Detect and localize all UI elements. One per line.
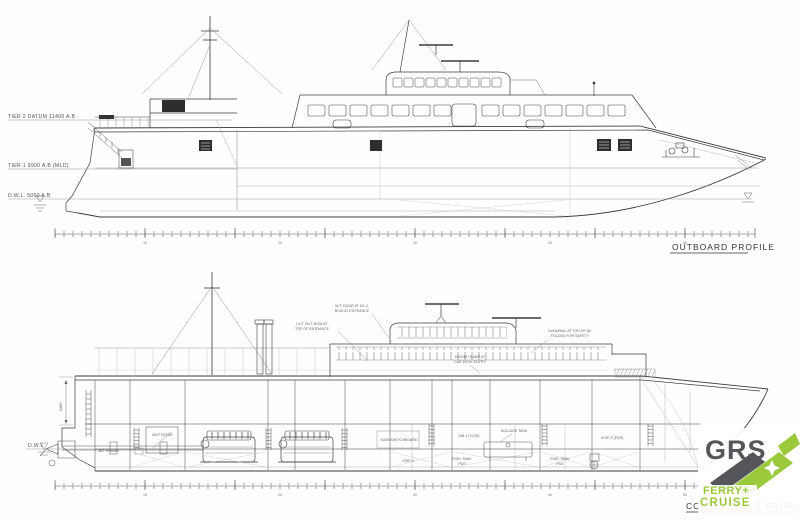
callout-4: HINGED RAMP AT xyxy=(455,355,486,359)
unit-room-label: UNIT ROOM xyxy=(152,433,173,437)
logo-cruise-text: CRUISE xyxy=(700,497,751,509)
depth-dimension xyxy=(59,377,73,425)
compartment-profile xyxy=(26,272,768,490)
drawing-sheet: TIER 2 DATUM 11400 A.B TIER 1 9900 A.B (… xyxy=(0,0,800,521)
switchboard-label: MAIN SWITCHBOARD xyxy=(381,438,418,442)
callout-3: HANDRAIL AT TOP OF DK xyxy=(548,329,592,333)
frame-numbers-top: 10 20 30 40 50 xyxy=(143,241,687,245)
svg-text:FOLDED FOR SAFETY: FOLDED FOR SAFETY xyxy=(551,334,590,338)
grs-ferry-cruise-logo: GRS FERRY+ CRUISE xyxy=(698,428,800,516)
svg-text:30: 30 xyxy=(413,241,417,245)
tier2-datum-label: TIER 2 DATUM 11400 A.B xyxy=(8,114,75,120)
void2-label: VOID 2 (P&S) xyxy=(601,436,623,440)
svg-text:TOP OF ENTRANCE: TOP OF ENTRANCE xyxy=(295,327,330,331)
frame-numbers-bottom: 10 20 30 40 50 xyxy=(143,493,687,497)
callout-1: W.T. DOOR AT DK 2, xyxy=(335,304,369,308)
svg-text:10: 10 xyxy=(143,493,147,497)
dwl-datum-label: D.W.L. 5060 A.B xyxy=(8,193,51,199)
sullage-tank-label: SULLAGE TANK xyxy=(501,429,528,433)
outboard-profile xyxy=(8,16,766,238)
outboard-profile-title: OUTBOARD PROFILE xyxy=(672,242,775,252)
svg-text:CAR DECK ENTRY: CAR DECK ENTRY xyxy=(454,360,486,364)
svg-text:P&S: P&S xyxy=(458,462,466,466)
waterjet xyxy=(40,441,75,466)
ladders xyxy=(86,390,653,450)
hull-vents xyxy=(199,139,632,151)
callout-2: CUT OUT, BOW AT xyxy=(296,322,328,326)
fuel-tank-1-label: FUEL TANK xyxy=(452,457,472,461)
station-line xyxy=(55,228,755,238)
side-door xyxy=(452,104,476,126)
jet-room-label: JET ROOM xyxy=(98,448,119,453)
svg-text:BOW AT ENTRANCE: BOW AT ENTRANCE xyxy=(335,309,370,313)
bow-deck-stairs xyxy=(615,369,655,377)
svg-text:P&S: P&S xyxy=(556,462,564,466)
bulkheads xyxy=(95,376,690,471)
design-waterline xyxy=(8,193,754,211)
dwl-lower-label: D.W.L xyxy=(28,443,44,449)
svg-text:50: 50 xyxy=(683,493,687,497)
svg-text:20: 20 xyxy=(278,493,282,497)
hull-outline xyxy=(62,370,768,471)
fuel-tank-2-label: FUEL TANK xyxy=(550,457,570,461)
bridge-window-row xyxy=(393,78,501,87)
ship-general-arrangement-drawing: TIER 2 DATUM 11400 A.B TIER 1 9900 A.B (… xyxy=(0,0,800,521)
svg-text:50: 50 xyxy=(683,241,687,245)
vent-grille xyxy=(162,100,185,112)
svg-text:30: 30 xyxy=(413,493,417,497)
svg-text:20: 20 xyxy=(278,241,282,245)
antenna-arrays xyxy=(425,304,541,328)
svg-text:40: 40 xyxy=(548,493,552,497)
sullage-tank xyxy=(484,442,532,461)
handrail xyxy=(99,115,114,119)
frame-line xyxy=(55,480,726,490)
tier1-datum-label: TIER 1 9900 A.B (MLD) xyxy=(8,163,69,169)
svg-text:10: 10 xyxy=(143,241,147,245)
logo-ferry-text: FERRY+ xyxy=(703,485,749,497)
depth-dimension-label: 3400 xyxy=(58,402,63,412)
wb1-label: WB 1 (VOID) xyxy=(459,434,480,438)
compartment-labels: JET ROOM UNIT ROOM MAIN SWITCHBOARD WB 1… xyxy=(98,429,623,466)
window-row xyxy=(308,105,625,116)
hull-outline xyxy=(66,126,766,217)
void4-label: VOID 4 xyxy=(402,459,414,463)
main-mast xyxy=(142,16,282,100)
svg-text:40: 40 xyxy=(548,241,552,245)
